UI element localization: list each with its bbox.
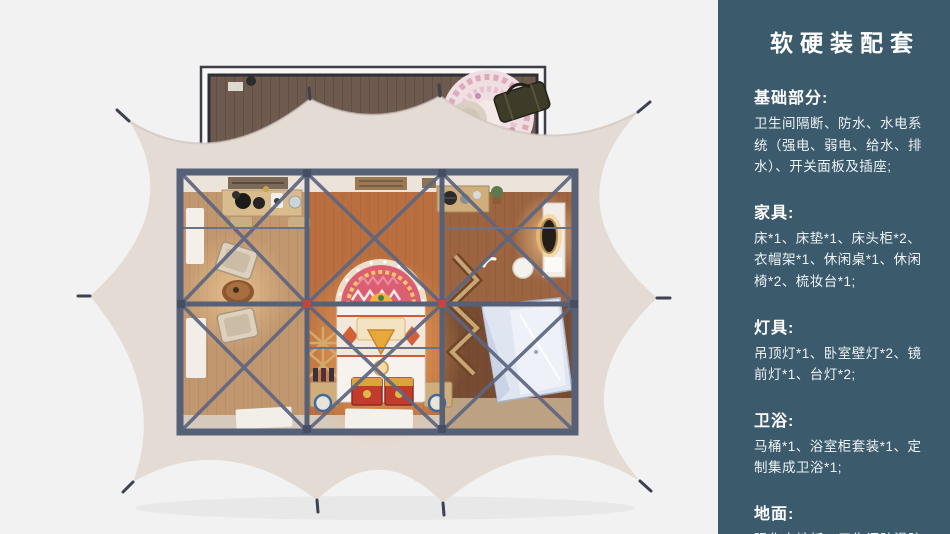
section-body: 吊顶灯*1、卧室壁灯*2、镜前灯*1、台灯*2;	[754, 343, 932, 386]
deck-item	[228, 82, 243, 91]
frame-connector-red	[303, 300, 311, 308]
sidebar-title: 软硬装配套	[754, 24, 932, 58]
spec-sidebar: 软硬装配套 基础部分: 卫生间隔断、防水、水电系统（强电、弱电、给水、排水）、开…	[718, 0, 950, 534]
section-heading: 卫浴:	[754, 407, 932, 431]
section-body: 床*1、床垫*1、床头柜*2、衣帽架*1、休闲桌*1、休闲椅*2、梳妆台*1;	[754, 228, 932, 293]
section-body: 马桶*1、浴室柜套装*1、定制集成卫浴*1;	[754, 436, 932, 479]
section-heading: 家具:	[754, 199, 932, 223]
floorplan-render	[0, 0, 718, 534]
bottles	[313, 368, 334, 383]
spec-section-furniture: 家具: 床*1、床垫*1、床头柜*2、衣帽架*1、休闲桌*1、休闲椅*2、梳妆台…	[754, 199, 932, 293]
frame-connector-red	[438, 300, 446, 308]
wall-panel	[186, 208, 204, 264]
section-body: 强化木地板、卫生间防滑防潮石塑板;	[754, 529, 932, 534]
main-render-area	[0, 0, 718, 534]
spec-section-bathroom: 卫浴: 马桶*1、浴室柜套装*1、定制集成卫浴*1;	[754, 407, 932, 479]
section-heading: 地面:	[754, 500, 932, 524]
ground-shadow	[135, 496, 635, 520]
vanity-mirror	[541, 219, 557, 253]
spec-section-flooring: 地面: 强化木地板、卫生间防滑防潮石塑板;	[754, 500, 932, 534]
plant	[491, 186, 503, 198]
section-body: 卫生间隔断、防水、水电系统（强电、弱电、给水、排水）、开关面板及插座;	[754, 113, 932, 178]
section-heading: 基础部分:	[754, 84, 932, 108]
section-heading: 灯具:	[754, 314, 932, 338]
floor-mat	[345, 408, 413, 430]
spec-section-lighting: 灯具: 吊顶灯*1、卧室壁灯*2、镜前灯*1、台灯*2;	[754, 314, 932, 386]
deck-lantern	[246, 76, 256, 86]
side-table	[222, 280, 254, 304]
spec-section-basics: 基础部分: 卫生间隔断、防水、水电系统（强电、弱电、给水、排水）、开关面板及插座…	[754, 84, 932, 178]
room-interior	[180, 172, 583, 445]
